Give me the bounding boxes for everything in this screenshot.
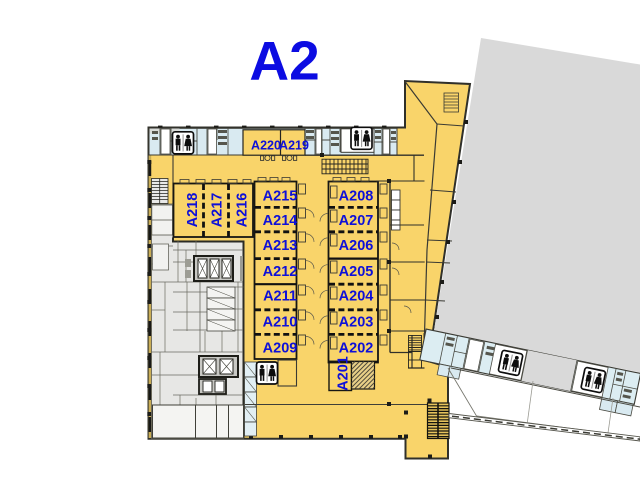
svg-text:A206: A206 (339, 238, 374, 254)
svg-text:A217: A217 (210, 193, 226, 228)
svg-text:A209: A209 (263, 341, 298, 357)
svg-text:A205: A205 (339, 264, 374, 280)
svg-text:A215: A215 (263, 189, 298, 205)
svg-text:A212: A212 (263, 264, 298, 280)
svg-text:A201: A201 (336, 356, 352, 391)
svg-text:A203: A203 (339, 315, 374, 331)
svg-text:A204: A204 (339, 289, 374, 305)
svg-text:A2: A2 (249, 30, 319, 92)
svg-text:A216: A216 (235, 193, 251, 228)
svg-text:A214: A214 (263, 213, 298, 229)
svg-text:A210: A210 (263, 315, 298, 331)
svg-text:A213: A213 (263, 238, 298, 254)
svg-text:A220: A220 (251, 138, 281, 152)
svg-text:A219: A219 (279, 138, 309, 152)
svg-text:A218: A218 (185, 193, 201, 228)
svg-text:A211: A211 (263, 289, 297, 305)
svg-text:A207: A207 (339, 213, 374, 229)
svg-text:A202: A202 (339, 341, 374, 357)
svg-text:A208: A208 (339, 189, 374, 205)
